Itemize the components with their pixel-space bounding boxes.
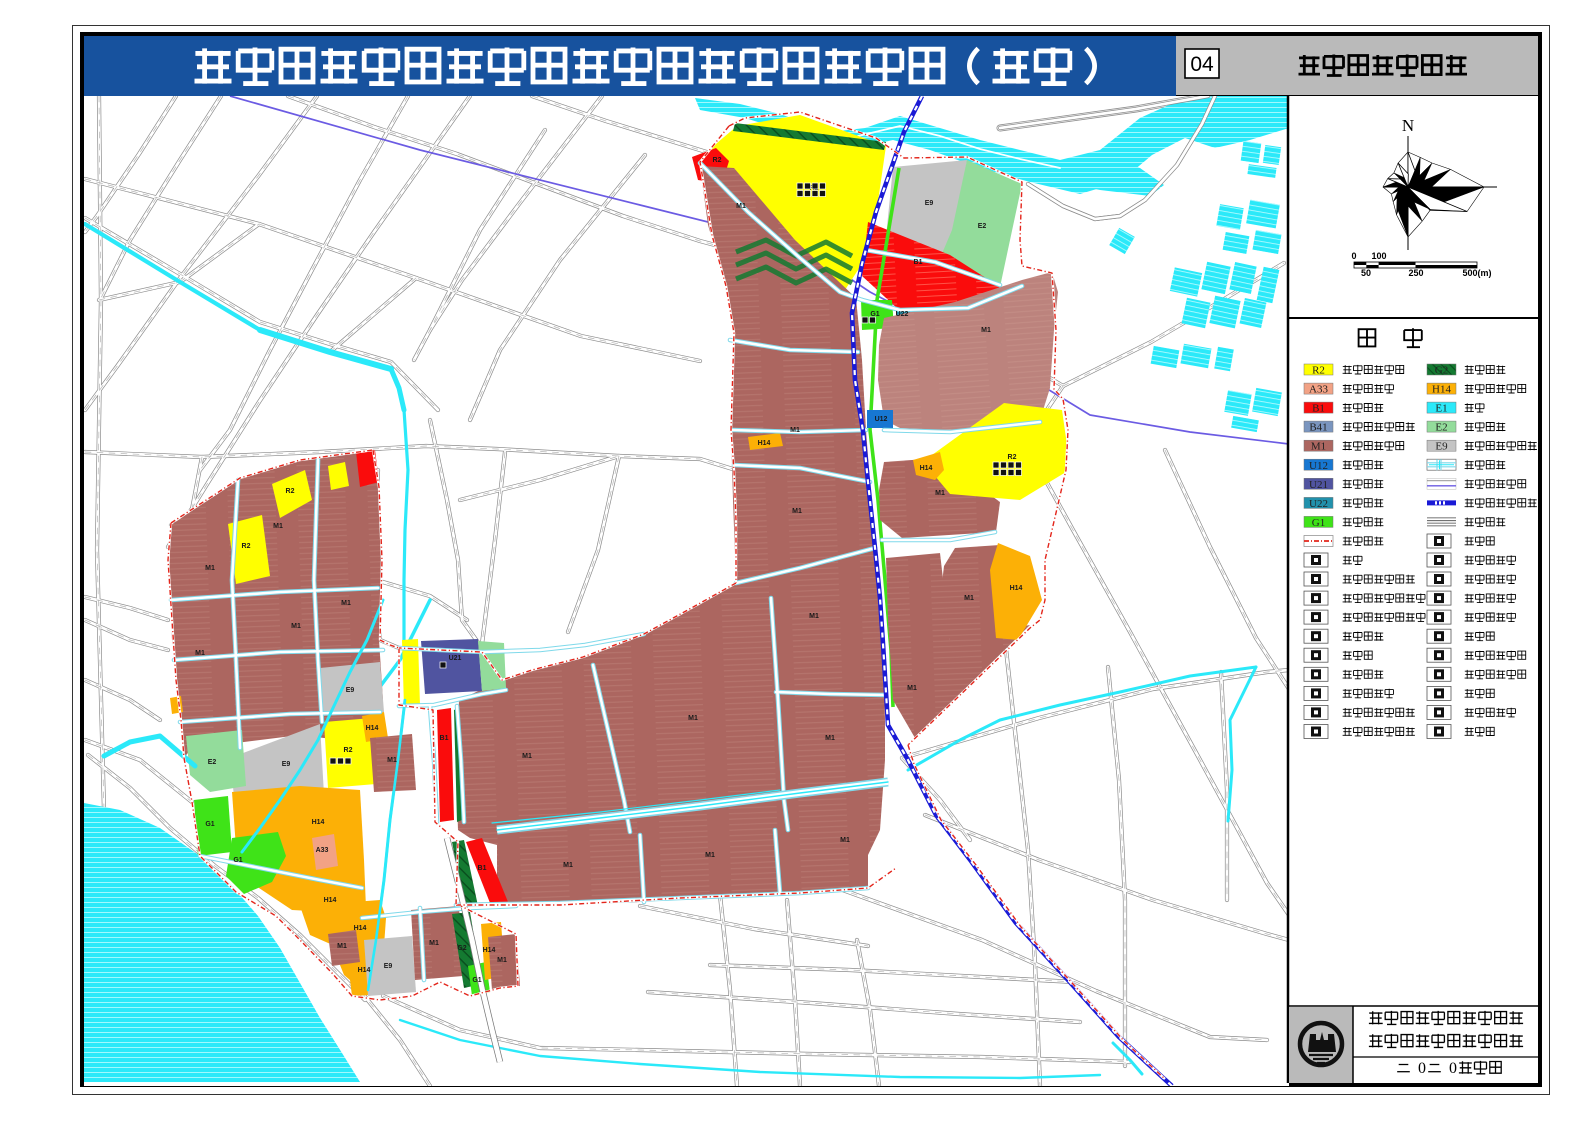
- svg-text:0: 0: [1351, 251, 1356, 261]
- svg-text:B41: B41: [1309, 422, 1327, 434]
- svg-text:50: 50: [1361, 268, 1371, 278]
- svg-text:U21: U21: [1309, 479, 1328, 491]
- svg-text:E1: E1: [1435, 403, 1447, 415]
- svg-text:500(m): 500(m): [1462, 268, 1491, 278]
- svg-text:B1: B1: [1312, 403, 1325, 415]
- svg-text:N: N: [1402, 116, 1414, 135]
- svg-text:0: 0: [1418, 1060, 1426, 1077]
- svg-text:U22: U22: [1309, 498, 1328, 510]
- svg-text:250: 250: [1408, 268, 1423, 278]
- svg-text:0: 0: [1449, 1060, 1457, 1077]
- svg-text:E2: E2: [1435, 422, 1447, 434]
- svg-text:U12: U12: [1309, 460, 1328, 472]
- svg-text:04: 04: [1190, 53, 1214, 76]
- svg-text:H14: H14: [1432, 384, 1451, 396]
- svg-text:100: 100: [1371, 251, 1386, 261]
- svg-text:E9: E9: [1435, 441, 1448, 453]
- svg-text:R2: R2: [1312, 365, 1325, 377]
- svg-text:A33: A33: [1309, 384, 1328, 396]
- svg-text:G1: G1: [1312, 517, 1325, 529]
- svg-text:G2: G2: [1435, 365, 1448, 377]
- svg-text:M1: M1: [1311, 441, 1326, 453]
